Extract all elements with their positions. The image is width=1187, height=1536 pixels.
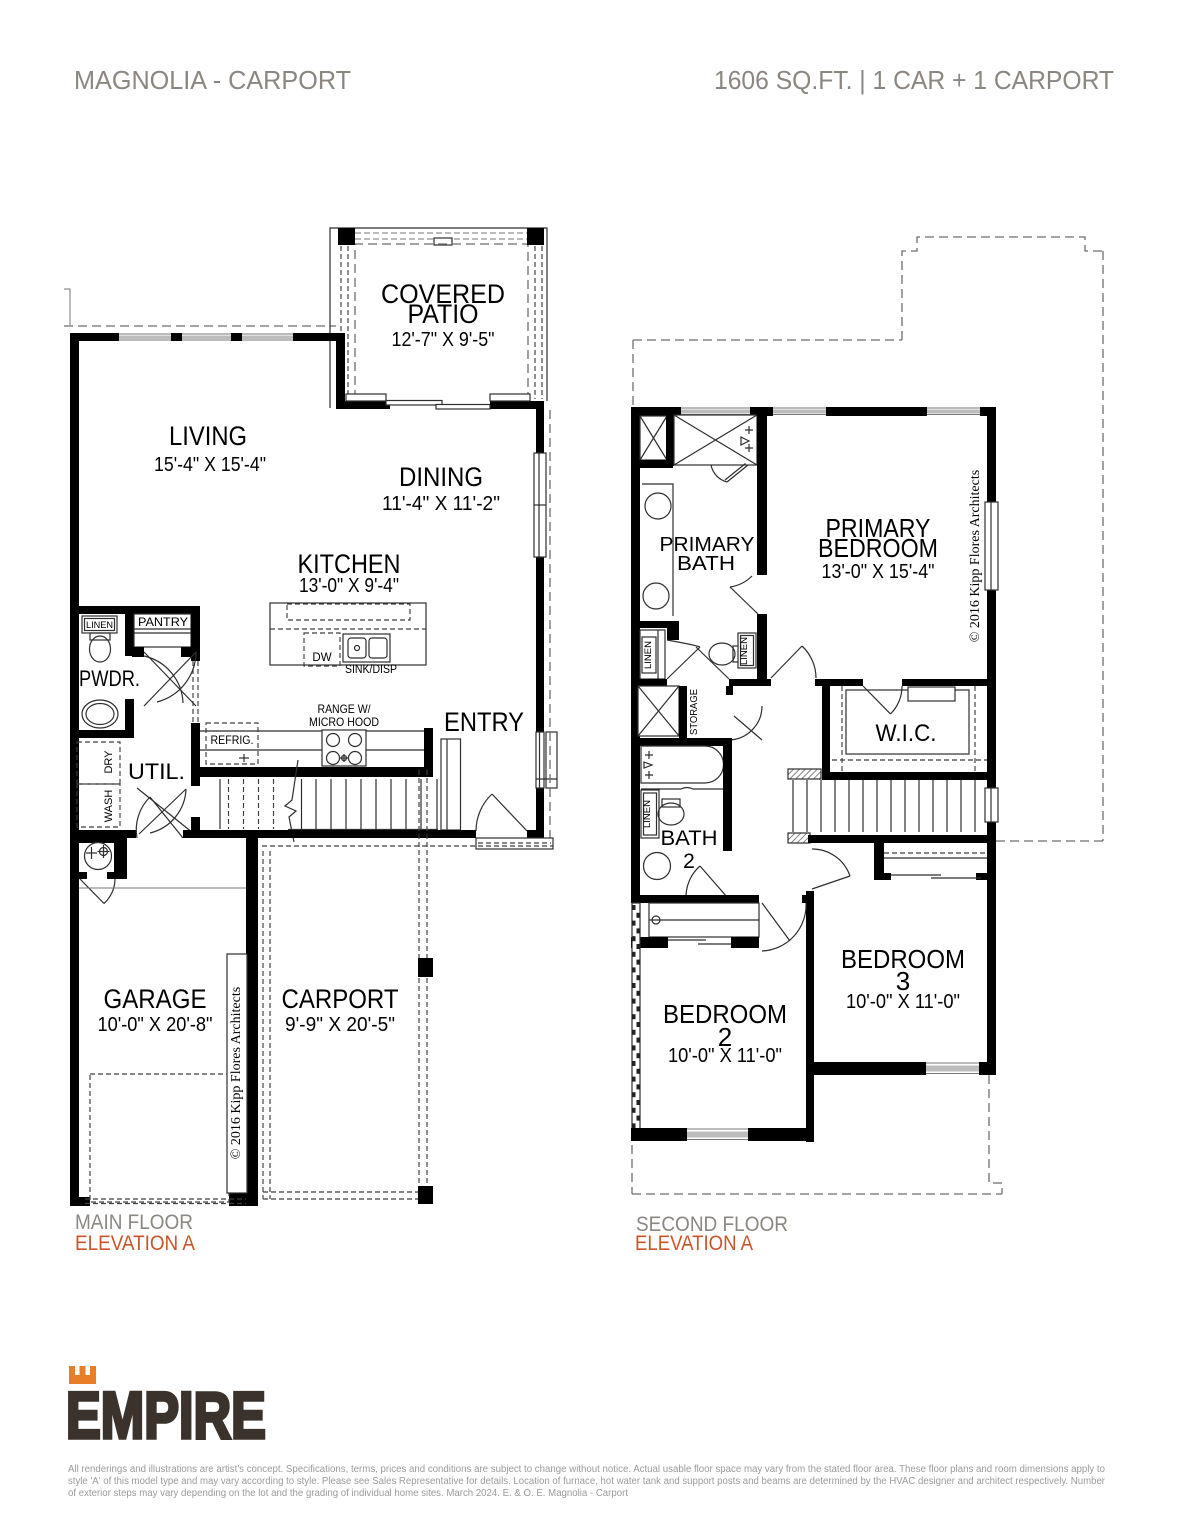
svg-text:13'-0" X 15'-4": 13'-0" X 15'-4" [822, 561, 935, 583]
svg-text:© 2016 Kipp Flores Architec: © 2016 Kipp Flores Architects [229, 987, 244, 1159]
svg-text:WASH: WASH [103, 790, 115, 823]
svg-text:LINEN: LINEN [739, 637, 750, 665]
svg-text:STORAGE: STORAGE [688, 689, 700, 735]
svg-text:ELEVATION A: ELEVATION A [75, 1232, 195, 1255]
svg-text:CARPORT: CARPORT [282, 984, 399, 1014]
svg-text:10'-0" X 11'-0": 10'-0" X 11'-0" [846, 991, 960, 1013]
svg-text:BATH: BATH [661, 827, 718, 850]
svg-text:MICRO HOOD: MICRO HOOD [309, 715, 379, 729]
svg-text:1606 SQ.FT. | 1 CAR + 1 CARPOR: 1606 SQ.FT. | 1 CAR + 1 CARPORT [714, 65, 1114, 95]
svg-text:LIVING: LIVING [169, 421, 247, 451]
svg-text:© 2016 Kipp Flores Architec: © 2016 Kipp Flores Architects [968, 470, 983, 642]
svg-text:SINK/DISP: SINK/DISP [345, 664, 397, 676]
svg-text:W.I.C.: W.I.C. [876, 720, 937, 747]
svg-text:MAIN FLOOR: MAIN FLOOR [75, 1211, 193, 1234]
svg-text:ELEVATION A: ELEVATION A [635, 1232, 753, 1255]
svg-text:BATH: BATH [677, 553, 735, 575]
svg-text:UTIL.: UTIL. [128, 759, 185, 784]
svg-text:9'-9" X 20'-5": 9'-9" X 20'-5" [285, 1014, 395, 1036]
svg-text:12'-7" X 9'-5": 12'-7" X 9'-5" [392, 329, 495, 351]
svg-text:PANTRY: PANTRY [138, 615, 188, 629]
svg-text:of exterior steps may vary dep: of exterior steps may vary depending on … [68, 1488, 628, 1499]
svg-text:11'-4" X 11'-2": 11'-4" X 11'-2" [382, 493, 500, 515]
svg-text:2: 2 [683, 850, 695, 873]
svg-text:10'-0" X 20'-8": 10'-0" X 20'-8" [98, 1014, 213, 1036]
svg-text:15'-4" X 15'-4": 15'-4" X 15'-4" [154, 454, 266, 476]
svg-text:LINEN: LINEN [642, 800, 653, 828]
svg-text:REFRIG.: REFRIG. [211, 735, 254, 747]
svg-text:PATIO: PATIO [408, 299, 479, 329]
svg-text:DW: DW [312, 652, 331, 664]
svg-text:RANGE W/: RANGE W/ [318, 702, 372, 716]
svg-text:EMPIRE: EMPIRE [66, 1378, 266, 1452]
svg-text:ENTRY: ENTRY [444, 707, 524, 737]
svg-text:13'-0" X 9'-4": 13'-0" X 9'-4" [299, 575, 399, 597]
svg-text:DINING: DINING [399, 462, 483, 492]
svg-text:10'-0" X 11'-0": 10'-0" X 11'-0" [668, 1045, 782, 1067]
svg-text:MAGNOLIA - CARPORT: MAGNOLIA - CARPORT [74, 65, 351, 95]
svg-text:LINEN: LINEN [643, 641, 654, 669]
svg-text:PWDR.: PWDR. [79, 666, 140, 691]
svg-text:GARAGE: GARAGE [104, 984, 207, 1014]
svg-text:All renderings and illustratio: All renderings and illustrations are art… [68, 1464, 1105, 1475]
svg-text:BEDROOM: BEDROOM [818, 533, 938, 563]
svg-text:LINEN: LINEN [86, 620, 113, 631]
svg-text:DRY: DRY [103, 750, 115, 774]
svg-text:style 'A' of this model type a: style 'A' of this model type and may var… [68, 1476, 1106, 1487]
